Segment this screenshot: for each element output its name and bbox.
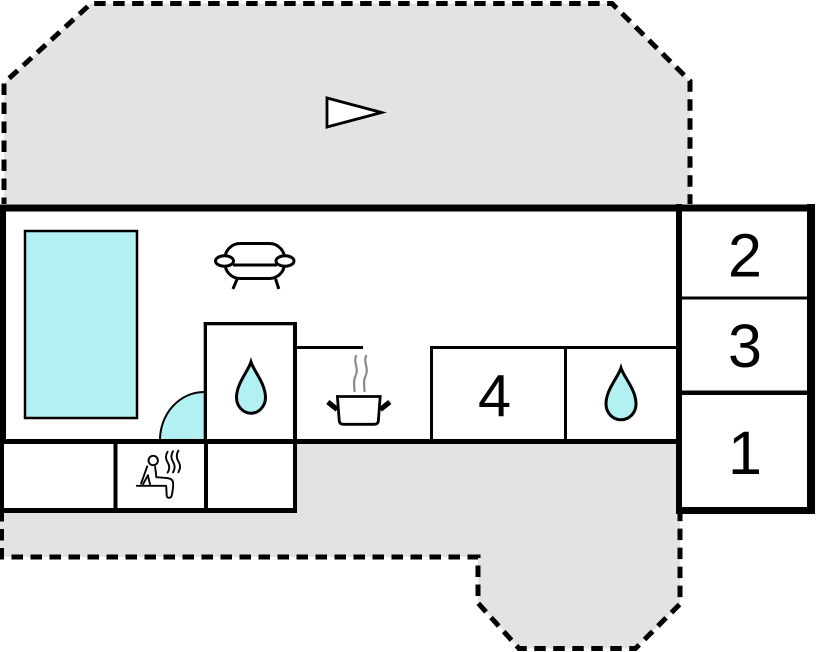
svg-text:1: 1 xyxy=(728,419,762,487)
svg-text:4: 4 xyxy=(478,363,511,430)
svg-text:2: 2 xyxy=(728,222,762,290)
svg-text:3: 3 xyxy=(728,312,762,380)
